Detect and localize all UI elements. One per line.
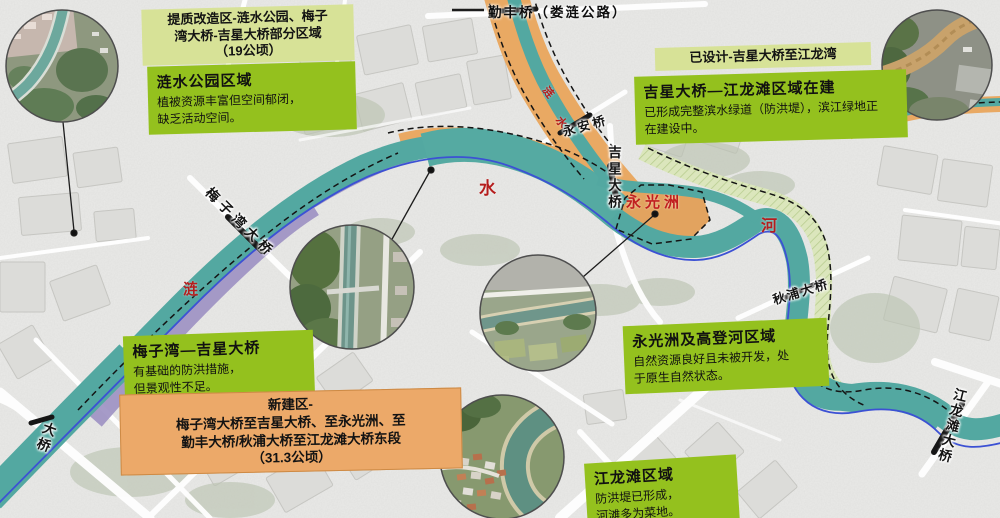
callout-yongguang-gaodeng: 永光洲及高登河区域 自然资源良好且未被开发，处 于原生自然状态。 — [623, 318, 830, 395]
callout-jixing-jianglongtan: 吉星大桥—江龙滩区域在建 已形成完整滨水绿道（防洪堤），滨江绿地正 在建设中。 — [634, 69, 908, 145]
photo-inset-lianshui-park — [4, 8, 120, 124]
callout-jixing-jianglongtan-body: 已形成完整滨水绿道（防洪堤），滨江绿地正 在建设中。 — [644, 97, 899, 137]
tag-upgrade-area: 提质改造区-涟水公园、梅子 湾大桥-吉星大桥部分区域 （19公顷） — [141, 4, 354, 65]
callout-new-area: 新建区- 梅子湾大桥至吉星大桥、至永光洲、至 勤丰大桥/秋浦大桥至江龙滩大桥东段… — [119, 387, 463, 475]
callout-lianshui-park-title: 涟水公园区域 — [156, 67, 346, 93]
planning-map-canvas: 勤丰桥（娄涟公路） 梅子湾大桥 永安桥 吉星大桥 秋浦大桥 江龙滩大桥 大桥 涟… — [0, 0, 1000, 518]
callout-yongguang-gaodeng-body: 自然资源良好且未被开发，处 于原生自然状态。 — [633, 346, 820, 387]
callout-lianshui-park-body: 植被资源丰富但空间郁闭， 缺乏活动空间。 — [157, 90, 348, 128]
bridge-label-jixing: 吉星大桥 — [603, 145, 623, 211]
callout-jianglongtan: 江龙滩区域 防洪堤已形成， 河滩多为菜地。 — [584, 454, 740, 518]
photo-inset-yongguangzhou — [477, 252, 599, 374]
river-name-char-he: 河 — [761, 212, 777, 236]
islet-label-yongguangzhou: 永光洲 — [626, 191, 683, 212]
river-name-char-shui: 水 — [479, 174, 496, 199]
callout-jianglongtan-body: 防洪堤已形成， 河滩多为菜地。 — [595, 483, 731, 518]
callout-lianshui-park: 涟水公园区域 植被资源丰富但空间郁闭， 缺乏活动空间。 — [147, 61, 357, 135]
river-name-char-lian: 涟 — [183, 278, 198, 299]
top-bridge-label: 勤丰桥（娄涟公路） — [488, 1, 628, 21]
